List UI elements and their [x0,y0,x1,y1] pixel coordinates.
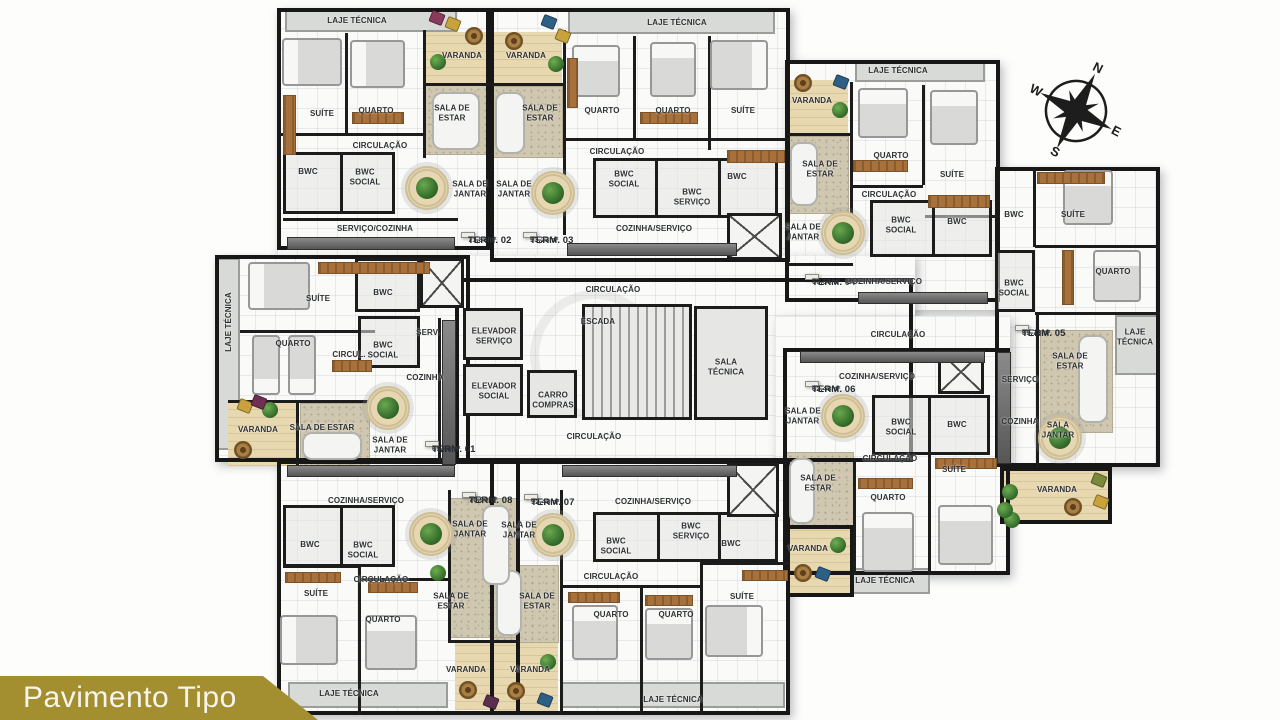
patio-table [794,564,812,582]
dining-table [531,171,575,215]
wall [340,152,343,214]
wall [922,85,925,185]
wardrobe [935,458,997,469]
wardrobe [727,150,785,163]
bathroom-block [870,200,992,257]
dining-table [1038,416,1082,460]
kitchen-counter [567,243,737,256]
kitchen-counter [997,352,1011,464]
service-elevator [463,308,523,360]
wall [563,585,700,588]
patio-table [505,32,523,50]
wall [700,562,790,565]
wall [853,460,856,575]
wardrobe [352,112,404,124]
dining-table [821,211,865,255]
wall [787,263,853,266]
wall [655,158,658,218]
wall [358,565,361,715]
dining-table [409,512,453,556]
double-bed [280,615,338,665]
plant [1002,484,1018,500]
patio-table [794,74,812,92]
wall [853,185,923,188]
wall [928,395,931,455]
wall [345,33,348,133]
sofa [482,505,510,585]
wardrobe [283,95,296,155]
bathroom-block [593,158,778,218]
kitchen-counter [800,351,985,363]
double-bed [705,605,763,657]
double-bed [572,605,618,660]
staircase [582,304,692,420]
sofa [302,432,362,460]
wardrobe [1037,172,1105,184]
social-elevator [463,364,523,416]
compass-w: W [1028,81,1046,100]
sofa [495,92,525,154]
wardrobe [742,570,788,581]
wall [296,400,299,465]
wardrobe [368,582,418,593]
wall [850,82,853,215]
wall [240,330,375,333]
bathroom-block [995,250,1035,312]
shopping-cart-room [527,370,577,418]
patio-table [234,441,252,459]
wall [425,83,490,86]
sofa [432,92,480,150]
kitchen-counter [287,237,455,250]
double-bed [365,615,417,670]
wall [932,200,935,257]
wall [448,640,520,643]
wall [1035,312,1160,315]
wardrobe [858,478,913,489]
wardrobe [568,592,620,603]
compass-e: E [1109,122,1124,139]
kitchen-counter [858,292,988,304]
floor-plan-canvas: LAJE TÉCNICASUÍTEQUARTOVARANDASALA DE ES… [0,0,1280,720]
bathroom-block [872,395,990,455]
wardrobe [928,195,990,208]
wardrobe [1062,250,1074,305]
floor-title-banner: Pavimento Tipo [0,676,318,720]
wardrobe [853,160,908,172]
wall [423,30,426,158]
patio-table [507,682,525,700]
sofa [789,458,815,524]
patio-table [1064,498,1082,516]
kitchen-counter [287,465,455,477]
single-bed [288,335,316,395]
wall [633,36,636,138]
technical-room [694,306,768,420]
wardrobe [567,58,578,108]
wall [448,490,451,640]
single-bed [252,335,280,395]
bathroom-block [283,505,395,567]
wall [718,512,721,562]
dining-table [366,386,410,430]
wall [700,562,703,715]
double-bed [350,40,405,88]
wardrobe [318,262,430,274]
kitchen-counter [442,320,456,465]
patio-table [459,681,477,699]
wall [787,133,850,136]
wardrobe [332,360,372,372]
plant [997,502,1013,518]
kitchen-counter [562,465,737,477]
plant [540,654,556,670]
floor-title: Pavimento Tipo [0,676,318,720]
wall [283,218,458,221]
double-bed [645,608,693,660]
plant [430,565,446,581]
compass-n: N [1090,60,1105,77]
double-bed [938,505,993,565]
compass-s: S [1048,143,1063,160]
wall [280,133,423,136]
varanda-outline [786,525,854,597]
double-bed [862,512,914,572]
plant [548,56,564,72]
dining-table [821,394,865,438]
double-bed [248,262,310,310]
wall [340,505,343,567]
double-bed [572,45,620,97]
wardrobe [640,112,698,124]
sofa [790,142,818,206]
sofa [1078,335,1108,423]
double-bed [650,42,696,97]
compass-rose-icon: N S W E [1028,60,1124,162]
wall [1033,167,1036,247]
wall [657,512,660,562]
bathroom-block [283,152,395,214]
patio-table [465,27,483,45]
dining-table [531,513,575,557]
double-bed [1093,250,1141,302]
plant [832,102,848,118]
plant [430,54,446,70]
wall [492,83,563,86]
double-bed [930,90,978,145]
plant [830,537,846,553]
double-bed [710,40,768,90]
wardrobe [645,595,693,606]
wall [640,585,643,715]
wall [438,318,441,463]
double-bed [858,88,908,138]
wall [718,158,721,218]
bathroom-block [593,512,778,562]
wardrobe [285,572,341,583]
wall [1035,245,1160,248]
wall [565,138,790,141]
dining-table [405,166,449,210]
wall [928,455,931,575]
double-bed [282,38,342,86]
